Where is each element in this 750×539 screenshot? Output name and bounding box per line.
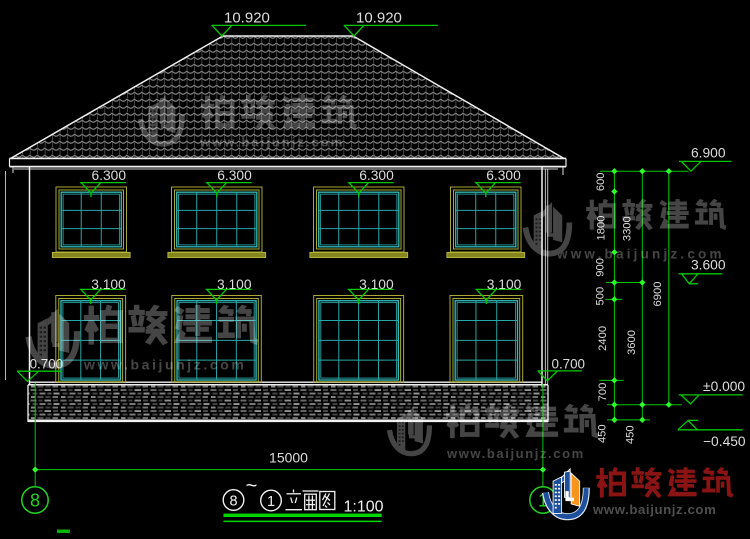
svg-text:6900: 6900 — [652, 282, 664, 307]
svg-text:www.baijunjz.com: www.baijunjz.com — [446, 446, 585, 461]
svg-text:1:100: 1:100 — [344, 499, 384, 516]
svg-text:www.baijunjz.com: www.baijunjz.com — [83, 357, 246, 373]
svg-text:15000: 15000 — [269, 450, 308, 466]
svg-text:~: ~ — [246, 475, 258, 497]
svg-text:600: 600 — [595, 172, 607, 191]
svg-text:3.100: 3.100 — [487, 277, 522, 292]
svg-text:6.300: 6.300 — [359, 168, 394, 183]
svg-text:−0.450: −0.450 — [703, 434, 746, 449]
svg-text:3.100: 3.100 — [217, 277, 252, 292]
svg-text:450: 450 — [625, 425, 637, 444]
svg-text:3.100: 3.100 — [91, 277, 126, 292]
svg-text:10.920: 10.920 — [356, 10, 402, 27]
svg-text:±0.000: ±0.000 — [703, 379, 745, 394]
svg-text:0.700: 0.700 — [552, 356, 586, 371]
svg-text:6.300: 6.300 — [92, 168, 127, 183]
svg-text:3.100: 3.100 — [359, 277, 394, 292]
svg-text:www.baijunjz.com: www.baijunjz.com — [592, 502, 716, 517]
svg-text:1: 1 — [267, 494, 275, 510]
svg-text:500: 500 — [595, 287, 607, 306]
svg-text:6.300: 6.300 — [217, 168, 252, 183]
svg-text:www.baijunjz.com: www.baijunjz.com — [199, 135, 344, 150]
svg-text:3600: 3600 — [626, 330, 638, 355]
svg-text:www.baijunjz.com: www.baijunjz.com — [556, 247, 725, 262]
svg-text:8: 8 — [30, 490, 40, 510]
svg-text:6.900: 6.900 — [691, 146, 726, 161]
svg-text:8: 8 — [229, 493, 237, 509]
svg-text:6.300: 6.300 — [486, 168, 521, 183]
svg-text:700: 700 — [597, 383, 609, 402]
svg-text:2400: 2400 — [597, 326, 609, 351]
svg-text:10.920: 10.920 — [224, 10, 270, 27]
